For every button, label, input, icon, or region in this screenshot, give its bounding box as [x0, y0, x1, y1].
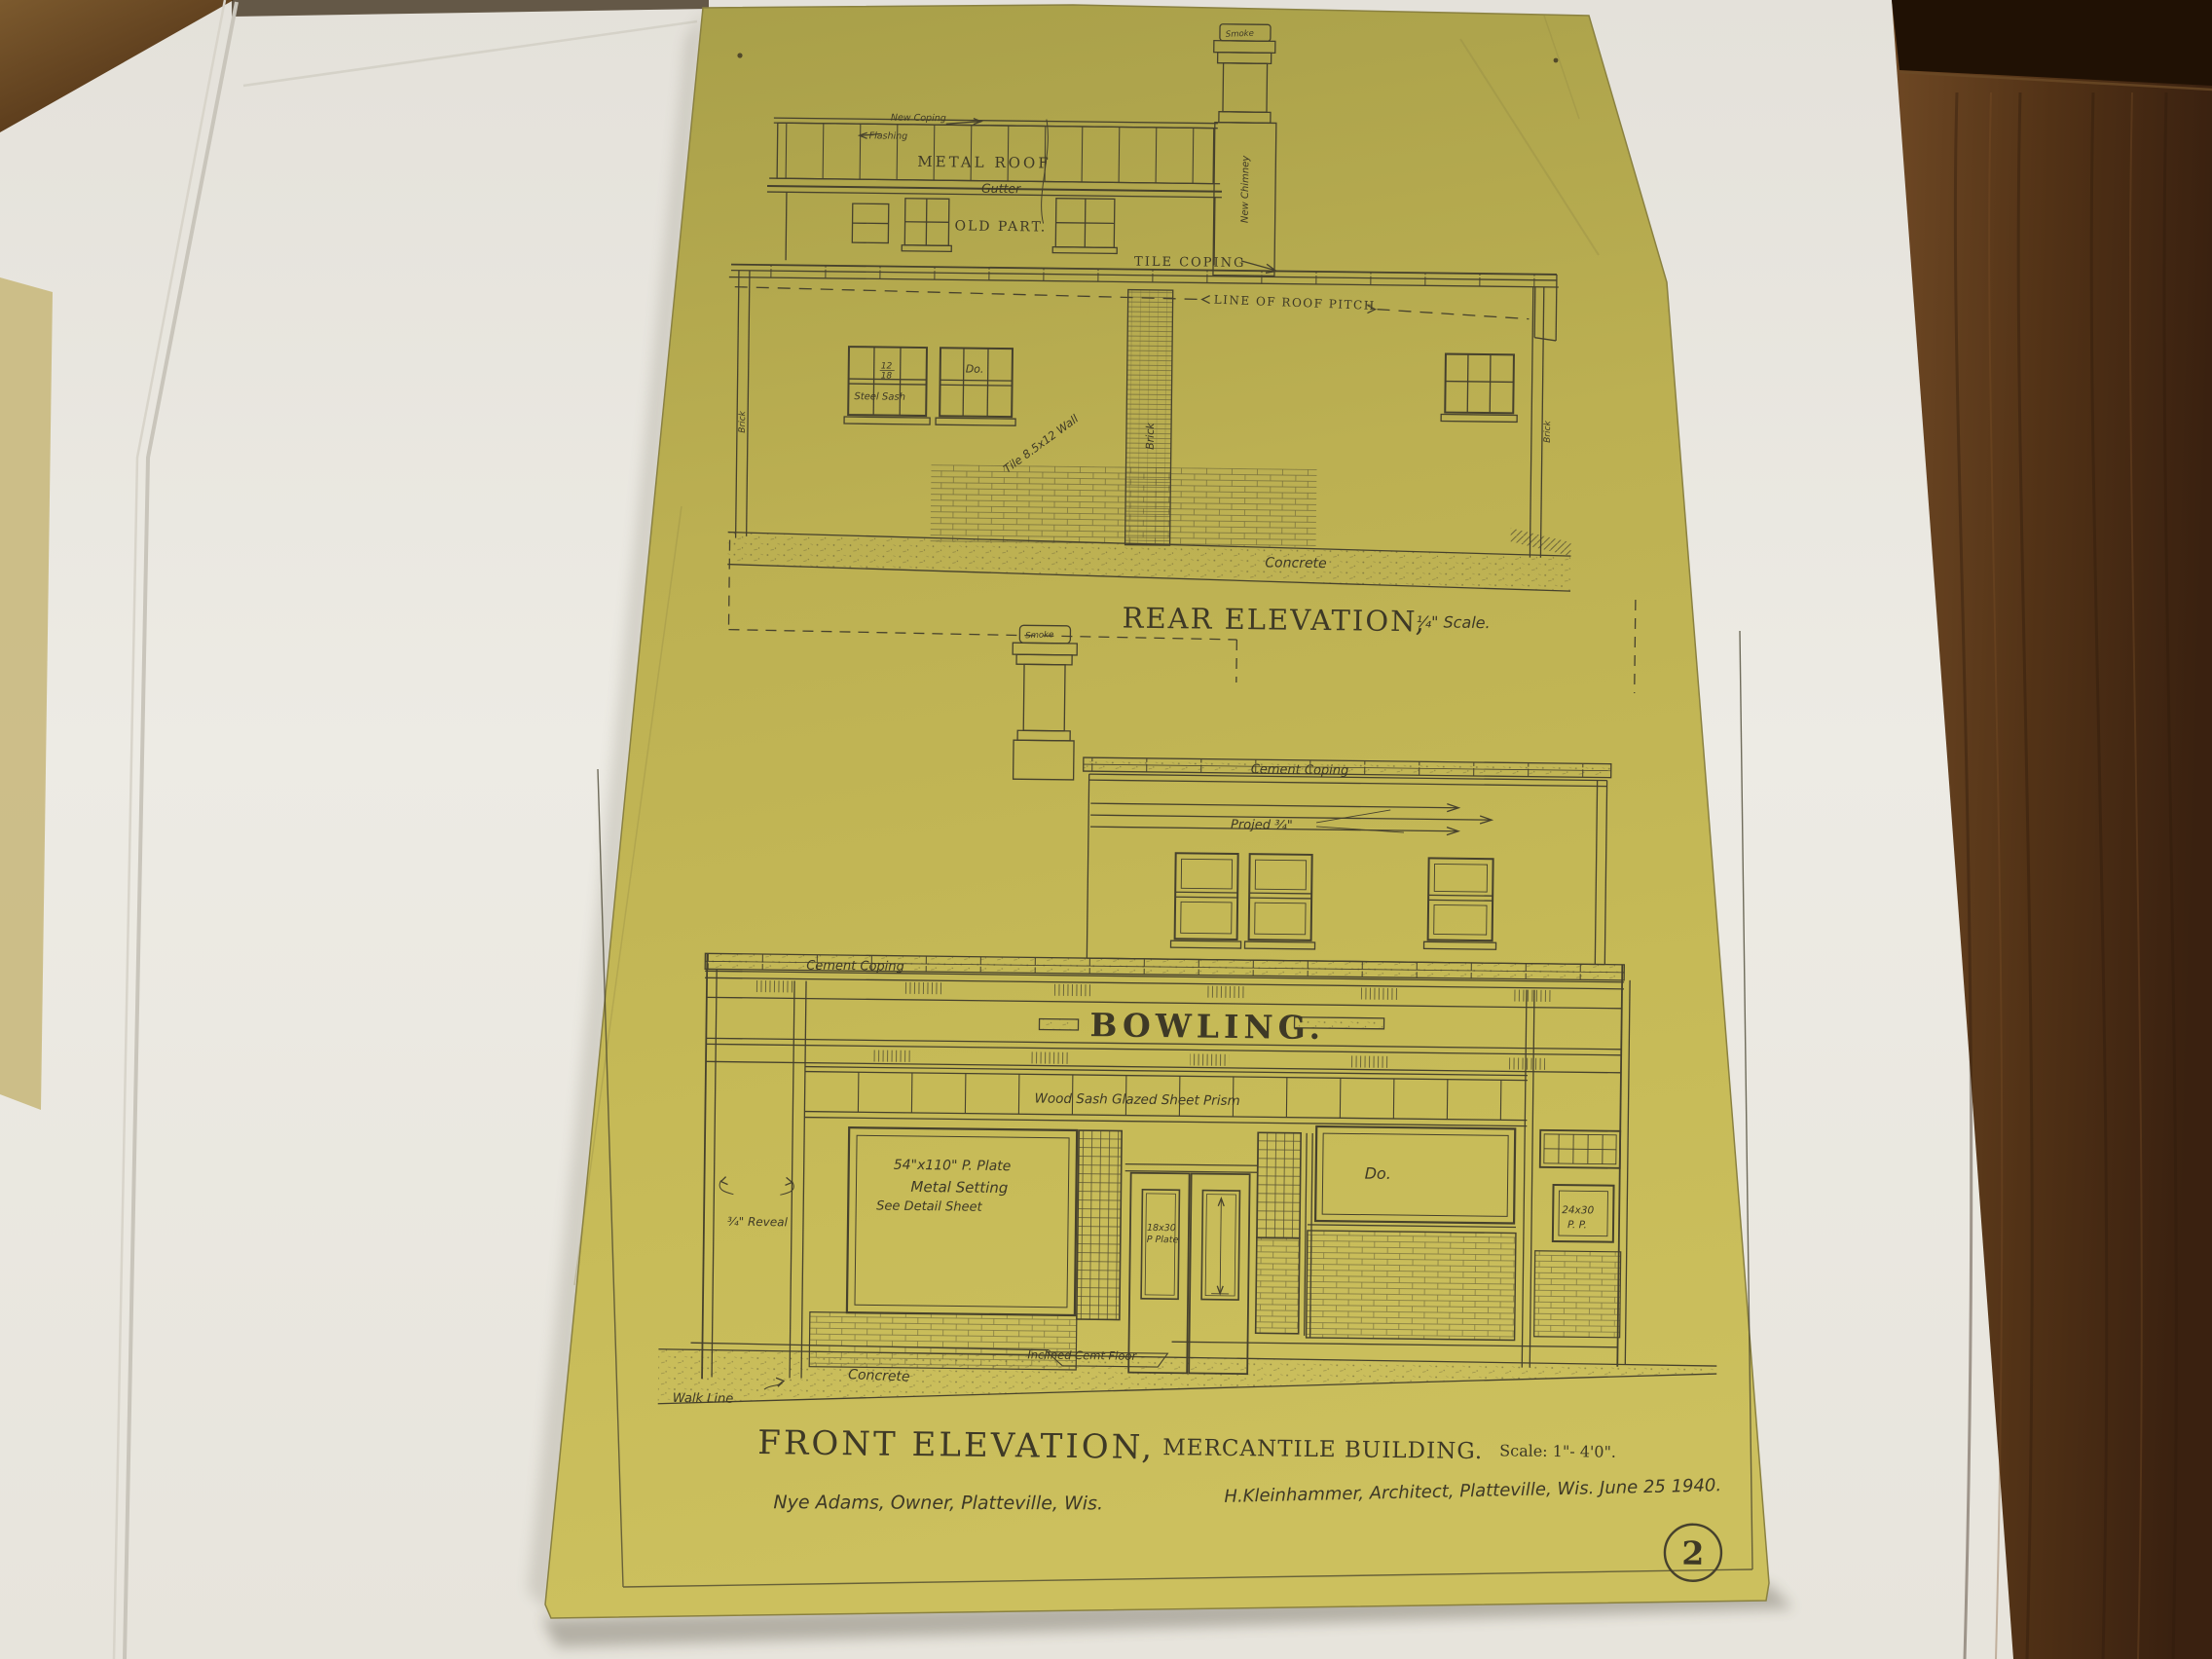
rear-sash-fraction-den: 18	[881, 371, 893, 381]
pin-hole	[737, 53, 742, 57]
sheet-number: 2	[1681, 1534, 1704, 1572]
walk-line-label: Walk Line	[673, 1391, 734, 1407]
prism-pier-left	[1077, 1130, 1122, 1320]
plate-setting-label: Metal Setting	[910, 1178, 1008, 1197]
owner-signature: Nye Adams, Owner, Platteville, Wis.	[773, 1492, 1103, 1514]
pin-hole	[1554, 58, 1559, 63]
front-project-label: Projed ¾"	[1231, 818, 1293, 833]
front-cement-coping-top-label: Cement Coping	[1251, 762, 1349, 778]
rear-steel-sash-label: Steel Sash	[854, 391, 905, 403]
rear-tile-coping-label: TILE COPING	[1134, 255, 1245, 271]
front-window-ditto-label: Do.	[1365, 1164, 1391, 1183]
rear-elevation-title: REAR ELEVATION,	[1122, 602, 1426, 639]
front-cement-coping-lower-label: Cement Coping	[806, 959, 904, 975]
pp-size-label: 24x30	[1562, 1204, 1594, 1216]
rear-concrete-label: Concrete	[1265, 555, 1327, 571]
door-glass-type-label: P Plate	[1147, 1235, 1179, 1245]
rear-elevation-scale: ¼" Scale.	[1416, 612, 1490, 632]
rear-brick-right-label: Brick	[1543, 420, 1553, 442]
door-glass-size-label: 18x30	[1147, 1223, 1176, 1234]
front-reveal-label: ¾" Reveal	[727, 1215, 789, 1230]
rear-flashing-label: Flashing	[869, 130, 908, 141]
rear-gutter-label: Gutter	[981, 181, 1021, 197]
photo-of-architectural-drawing: New Coping Flashing METAL ROOF Gutter Sm…	[0, 0, 2212, 1659]
front-transom-label: Wood Sash Glazed Sheet Prism	[1034, 1090, 1239, 1109]
rear-metal-roof-label: METAL ROOF	[917, 153, 1051, 172]
plate-size-label: 54"x110" P. Plate	[894, 1158, 1012, 1174]
rear-brick-left-label: Brick	[738, 410, 748, 432]
front-elevation-subtitle: MERCANTILE BUILDING.	[1162, 1435, 1483, 1464]
rear-old-part-label: OLD PART.	[954, 218, 1047, 235]
rear-brick-pier-label: Brick	[1144, 423, 1157, 450]
rear-window-ditto-label: Do.	[966, 363, 984, 376]
rear-chimney-cap-label: Smoke	[1226, 29, 1254, 40]
rear-new-chimney-label: New Chimney	[1240, 155, 1252, 223]
front-elevation-title: FRONT ELEVATION,	[757, 1423, 1155, 1467]
front-chimney-cap-label: Smoke	[1025, 630, 1053, 641]
rear-new-coping-label: New Coping	[891, 113, 946, 125]
front-elevation-scale: Scale: 1"- 4'0".	[1499, 1441, 1616, 1460]
see-detail-label: See Detail Sheet	[876, 1198, 982, 1214]
inclined-floor-label: Inclined Cemt Floor	[1027, 1347, 1137, 1362]
bowling-sign: BOWLING.	[1089, 1006, 1325, 1047]
front-concrete-label: Concrete	[848, 1367, 910, 1384]
prism-pier-right	[1256, 1132, 1302, 1334]
pp-type-label: P. P.	[1567, 1219, 1587, 1231]
